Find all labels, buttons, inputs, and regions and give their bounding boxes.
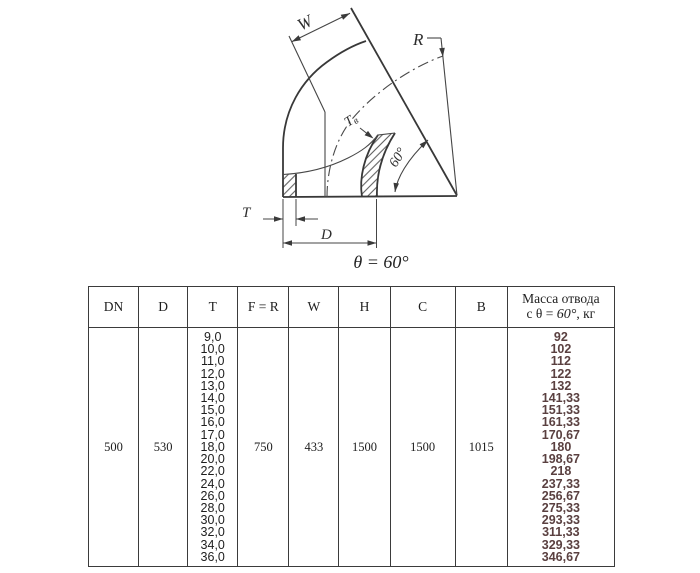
table-header-row: DN D T F = R W H C B Масса отводас θ = 6… xyxy=(89,287,615,328)
t-dimension xyxy=(263,199,318,248)
cell-h: 1500 xyxy=(339,328,390,567)
header-d: D xyxy=(139,287,188,328)
cell-b: 1015 xyxy=(455,328,507,567)
header-h: H xyxy=(339,287,390,328)
tv-label: Тв xyxy=(342,111,361,131)
left-wall-section xyxy=(283,174,296,197)
r-label: R xyxy=(412,30,424,49)
header-w: W xyxy=(289,287,339,328)
w-dimension xyxy=(289,13,350,112)
cell-c: 1500 xyxy=(390,328,455,567)
r-leader xyxy=(427,38,457,196)
header-f-r: F = R xyxy=(238,287,289,328)
mass-header-prefix: с θ = xyxy=(527,306,557,321)
t-dimension-arrows xyxy=(274,216,305,222)
cell-d: 530 xyxy=(139,328,188,567)
cell-dn: 500 xyxy=(89,328,139,567)
cell-w: 433 xyxy=(289,328,339,567)
document-page: W R Тв 60° T xyxy=(0,0,700,573)
angle-label: 60° xyxy=(387,145,410,170)
d-label: D xyxy=(320,227,332,243)
header-dn: DN xyxy=(89,287,139,328)
r-arrow xyxy=(439,48,445,57)
header-c: C xyxy=(390,287,455,328)
t-label: T xyxy=(242,205,252,221)
mass-header-line1: Масса отвода xyxy=(522,291,600,306)
theta-caption: θ = 60° xyxy=(353,252,408,272)
tv-leader xyxy=(360,128,367,134)
header-b: B xyxy=(455,287,507,328)
elbow-drawing: W R Тв 60° T xyxy=(0,0,700,284)
mass-header-suffix: , кг xyxy=(576,306,595,321)
mass-header-angle: 60° xyxy=(557,307,577,322)
table-data-row: 500 530 9,0 10,0 11,0 12,0 13,0 14,0 15,… xyxy=(89,328,615,567)
header-t: T xyxy=(188,287,238,328)
cell-f-r: 750 xyxy=(238,328,289,567)
cell-t-values: 9,0 10,0 11,0 12,0 13,0 14,0 15,0 16,0 1… xyxy=(188,328,238,567)
centerline xyxy=(327,56,443,197)
header-mass: Масса отводас θ = 60°, кг xyxy=(507,287,614,328)
dimension-table: DN D T F = R W H C B Масса отводас θ = 6… xyxy=(88,286,615,567)
cell-mass-values: 92 102 112 122 132 141,33 151,33 161,33 … xyxy=(507,328,614,567)
